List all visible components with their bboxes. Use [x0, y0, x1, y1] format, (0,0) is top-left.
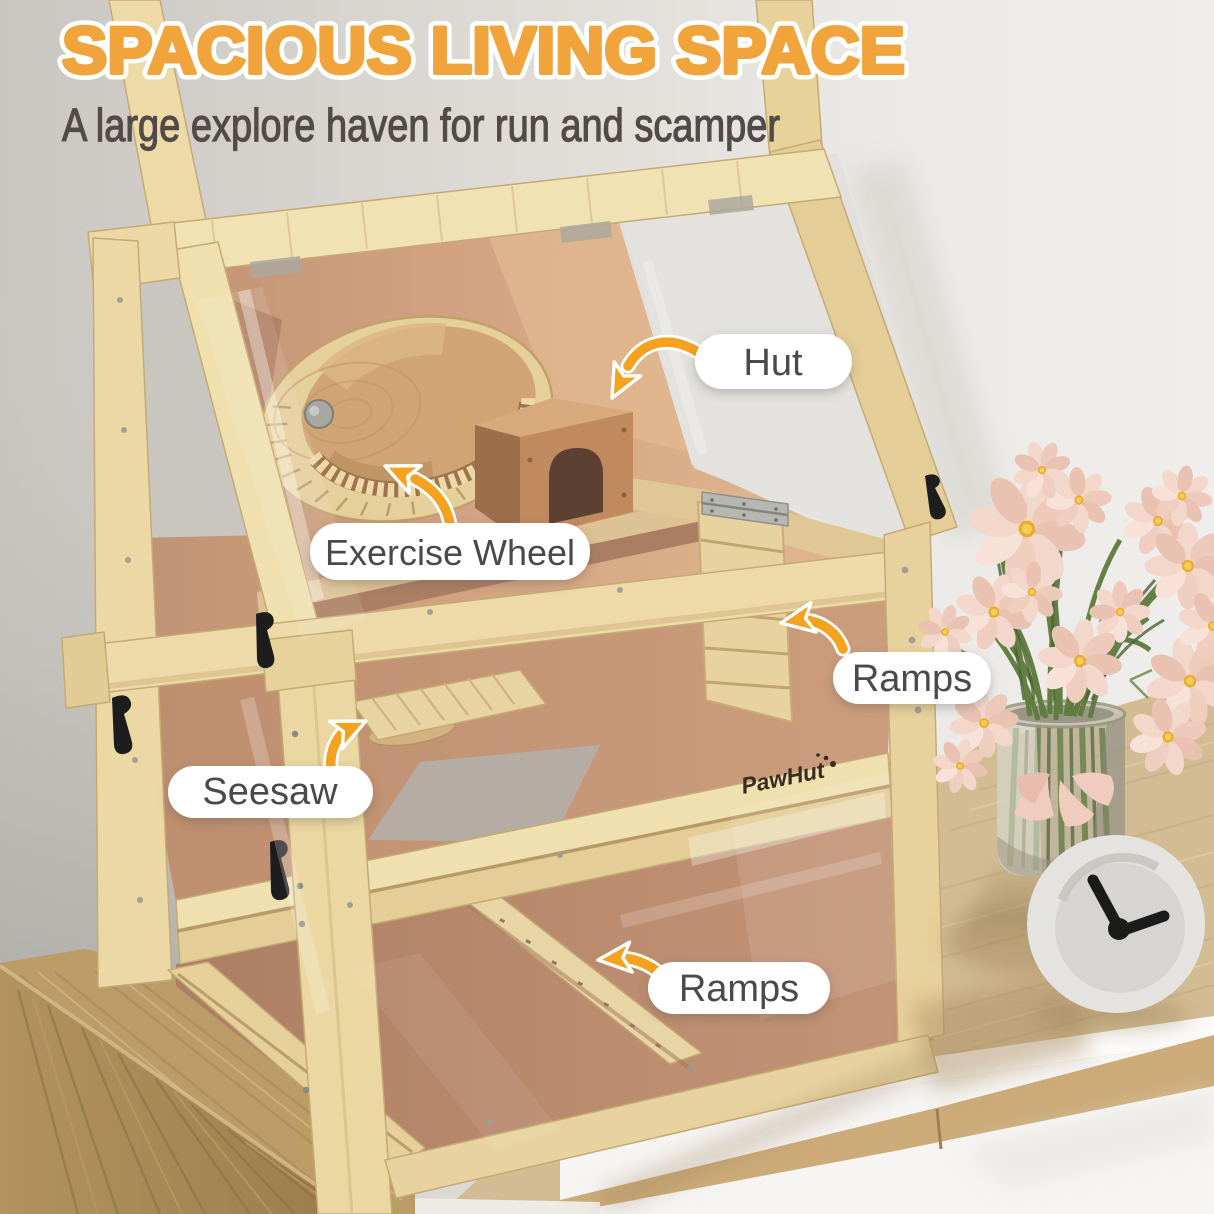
svg-text:Hut: Hut: [743, 342, 803, 384]
svg-text:Ramps: Ramps: [679, 968, 799, 1010]
svg-text:Exercise Wheel: Exercise Wheel: [325, 532, 575, 573]
svg-text:Seesaw: Seesaw: [202, 771, 338, 813]
svg-text:Ramps: Ramps: [852, 658, 972, 700]
svg-text:SPACIOUS LIVING SPACE: SPACIOUS LIVING SPACE: [62, 13, 905, 87]
svg-text:A large explore haven for run: A large explore haven for run and scampe…: [62, 99, 780, 151]
